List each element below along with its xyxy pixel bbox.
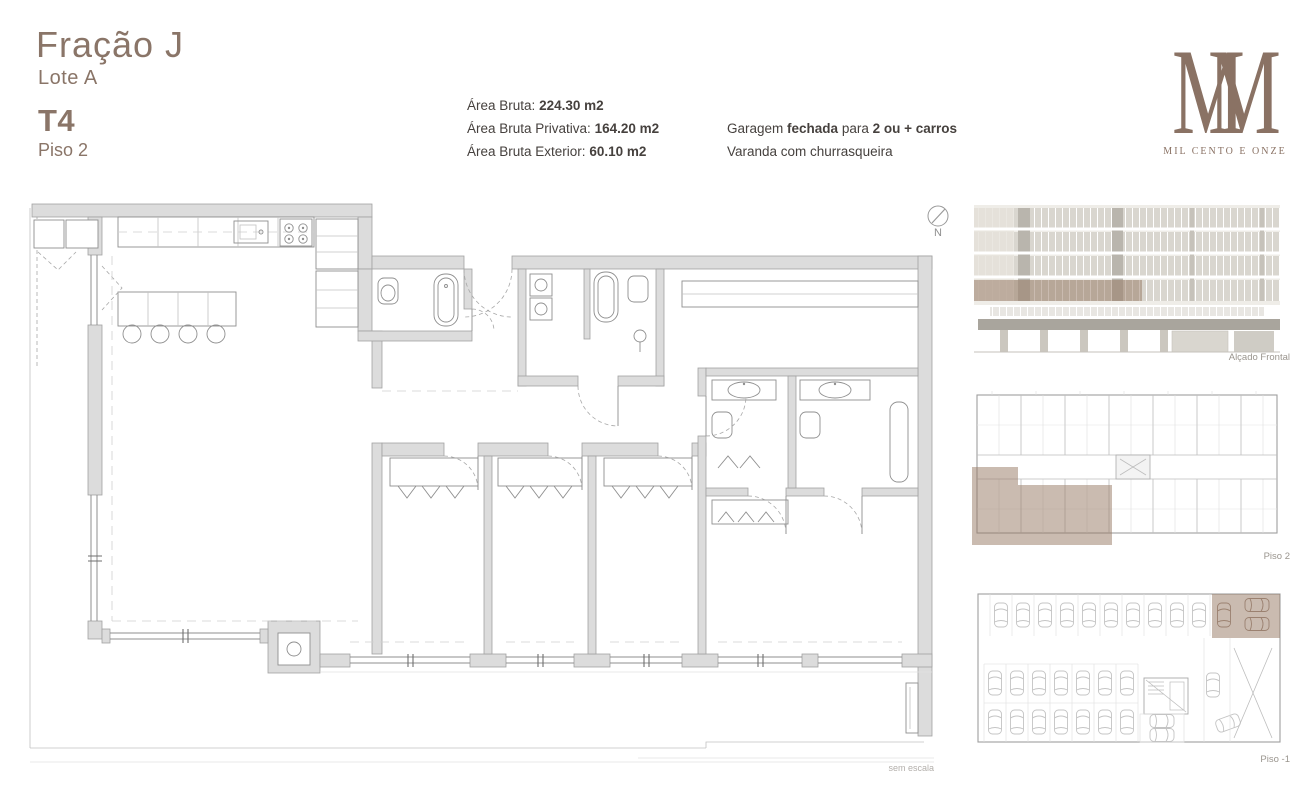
garage-feature: Garagem fechada para 2 ou + carros [727, 117, 957, 140]
toilet-icon [628, 276, 648, 302]
floor-label: Piso 2 [38, 140, 88, 161]
garage-piso-1-panel [972, 590, 1290, 750]
features-block: Garagem fechada para 2 ou + carros Varan… [727, 117, 957, 163]
hall-closet [682, 281, 918, 307]
shower-marks [718, 456, 760, 468]
area-row: Área Bruta Privativa: 164.20 m2 [467, 117, 659, 140]
garage-highlight [1212, 594, 1280, 638]
walk-in-closet [712, 500, 788, 524]
areas-block: Área Bruta: 224.30 m2 Área Bruta Privati… [467, 94, 659, 163]
page: Fração J Lote A T4 Piso 2 Área Bruta: 22… [0, 0, 1313, 793]
elevation-panel-label: Alçado Frontal [1090, 352, 1290, 363]
kitchen [118, 217, 358, 343]
toilet-icon [800, 412, 820, 438]
sink-icon [634, 330, 646, 342]
elevation-panel [972, 203, 1290, 353]
stool-icon [207, 325, 225, 343]
keyplan-piso2-panel [972, 387, 1290, 551]
toilet-icon [712, 412, 732, 438]
master-bathrooms [712, 380, 908, 534]
washer-icon [530, 274, 552, 296]
brand-monogram-icon: M M [1170, 28, 1282, 142]
garage-piso-1-label: Piso -1 [1090, 754, 1290, 765]
unit-highlight [974, 280, 1142, 301]
tall-cabinets [316, 219, 358, 269]
area-row: Área Bruta Exterior: 60.10 m2 [467, 140, 659, 163]
typology-label: T4 [38, 103, 75, 139]
kitchen-island [118, 292, 236, 326]
lot-subtitle: Lote A [38, 67, 98, 90]
north-arrow-icon [928, 206, 948, 226]
wardrobes [390, 458, 692, 498]
stool-icon [151, 325, 169, 343]
terrace-storage [34, 220, 98, 248]
facade-beam [978, 319, 1280, 330]
bathtub-icon [890, 402, 908, 482]
balcony-feature: Varanda com churrasqueira [727, 140, 957, 163]
stool-icon [179, 325, 197, 343]
keyplan-piso2-label: Piso 2 [1090, 551, 1290, 562]
north-label: N [929, 227, 947, 239]
area-row: Área Bruta: 224.30 m2 [467, 94, 659, 117]
stool-icon [123, 325, 141, 343]
bathroom-a [378, 274, 494, 331]
scale-note: sem escala [794, 763, 934, 773]
dryer-icon [530, 298, 552, 320]
svg-text:M: M [1208, 28, 1281, 142]
main-floor-plan [18, 196, 963, 776]
fraction-title: Fração J [36, 24, 184, 66]
brand-name: MIL CENTO E ONZE [1150, 146, 1300, 157]
